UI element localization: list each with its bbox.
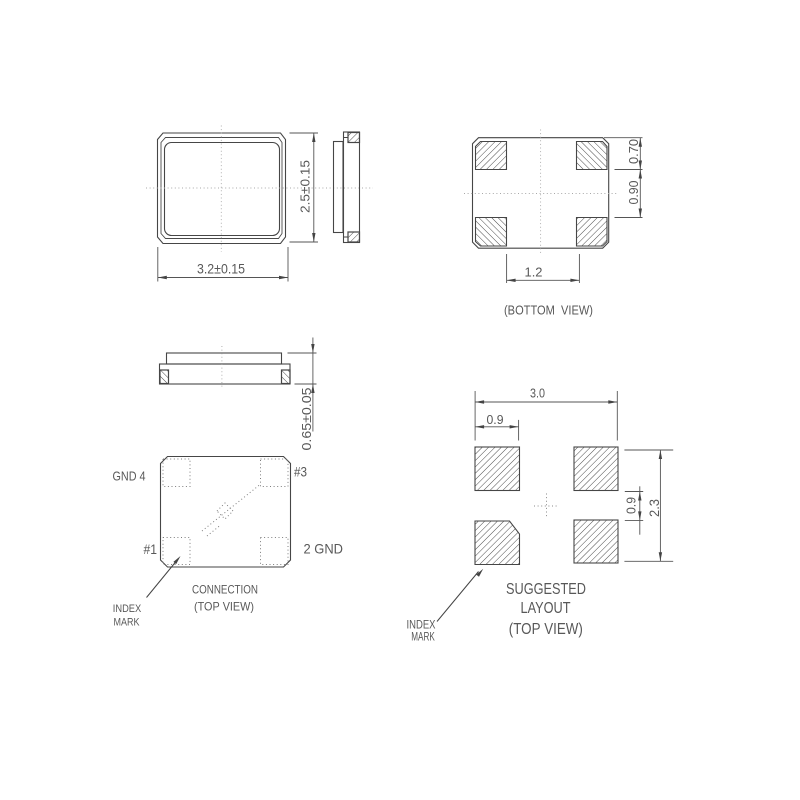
svg-text:#1: #1 xyxy=(144,541,158,557)
svg-text:#3: #3 xyxy=(294,464,307,480)
svg-text:MARK: MARK xyxy=(114,617,141,629)
svg-text:0.9: 0.9 xyxy=(625,497,639,514)
svg-text:(TOP VIEW): (TOP VIEW) xyxy=(509,621,583,638)
svg-text:CONNECTION: CONNECTION xyxy=(192,583,258,597)
svg-text:SUGGESTED: SUGGESTED xyxy=(506,581,586,598)
svg-text:(TOP VIEW): (TOP VIEW) xyxy=(194,600,254,614)
svg-text:2 GND: 2 GND xyxy=(304,541,344,557)
svg-text:1.2: 1.2 xyxy=(525,266,543,280)
svg-text:0.65±0.05: 0.65±0.05 xyxy=(299,388,314,451)
svg-text:0.90: 0.90 xyxy=(627,180,641,204)
svg-text:3.0: 3.0 xyxy=(530,387,545,401)
svg-text:0.70: 0.70 xyxy=(627,139,641,164)
svg-text:LAYOUT: LAYOUT xyxy=(521,600,571,617)
svg-text:2.3: 2.3 xyxy=(647,499,662,517)
svg-text:3.2±0.15: 3.2±0.15 xyxy=(197,262,245,277)
svg-text:2.5±0.15: 2.5±0.15 xyxy=(298,160,313,213)
svg-text:MARK: MARK xyxy=(411,630,435,644)
svg-text:GND 4: GND 4 xyxy=(113,469,146,484)
svg-text:0.9: 0.9 xyxy=(487,413,504,427)
svg-text:(BOTTOM VIEW): (BOTTOM VIEW) xyxy=(504,304,593,318)
svg-text:INDEX: INDEX xyxy=(113,603,142,615)
